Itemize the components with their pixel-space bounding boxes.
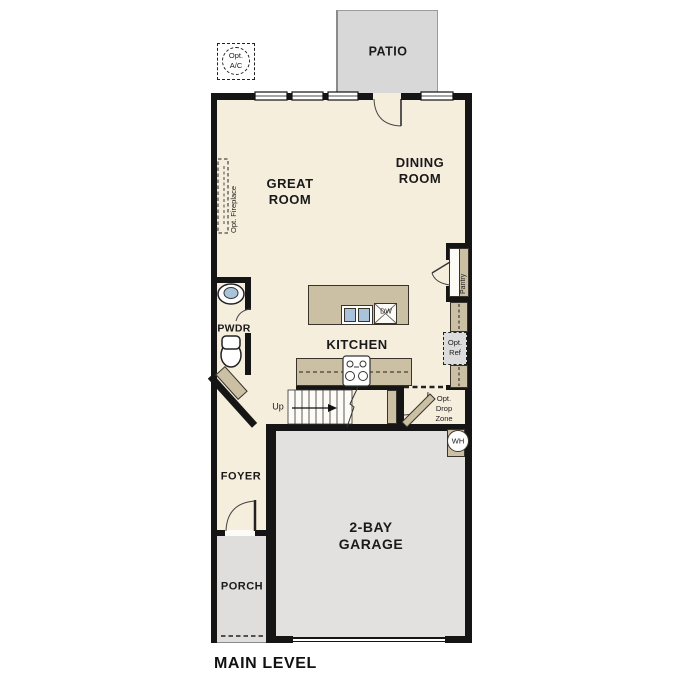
toilet-icon <box>221 336 241 367</box>
pwdr-door-icon <box>236 309 251 321</box>
staircase-icon <box>288 387 358 427</box>
opt-fireplace-icon <box>218 159 228 233</box>
pantry-label: Pantry <box>460 252 469 294</box>
patio-label: PATIO <box>369 44 408 59</box>
floor-plan: PATIO Opt. A/C GREAT ROOM DINING ROOM KI… <box>0 0 687 687</box>
pwdr-label: PWDR <box>217 323 250 336</box>
window-icon <box>292 92 323 100</box>
pantry-door-icon <box>432 262 450 285</box>
kitchen-label: KITCHEN <box>326 337 387 353</box>
up-label: Up <box>272 402 284 413</box>
garage-label: 2-BAY GARAGE <box>339 519 403 553</box>
opt-ac-label: Opt. A/C <box>229 51 243 71</box>
foyer-label: FOYER <box>221 470 261 483</box>
plan-title: MAIN LEVEL <box>214 655 317 673</box>
front-door-icon <box>225 500 255 536</box>
opt-fireplace-label: Opt. Fireplace <box>229 159 238 233</box>
window-icon <box>421 92 453 100</box>
dishwasher-label: DW <box>380 309 392 318</box>
cooktop-icon <box>343 356 370 386</box>
patio-door-icon <box>373 93 401 126</box>
opt-drop-zone-label: Opt. Drop Zone <box>435 394 452 424</box>
great-room-label: GREAT ROOM <box>266 176 313 208</box>
window-icon <box>255 92 287 100</box>
dining-room-label: DINING ROOM <box>396 155 445 187</box>
opt-ref-label: Opt. Ref <box>448 338 462 358</box>
window-icon <box>328 92 358 100</box>
sink-icon <box>218 284 244 304</box>
water-heater-label: WH <box>452 436 465 445</box>
dropzone-door-icon <box>402 392 435 427</box>
porch-label: PORCH <box>221 580 263 593</box>
